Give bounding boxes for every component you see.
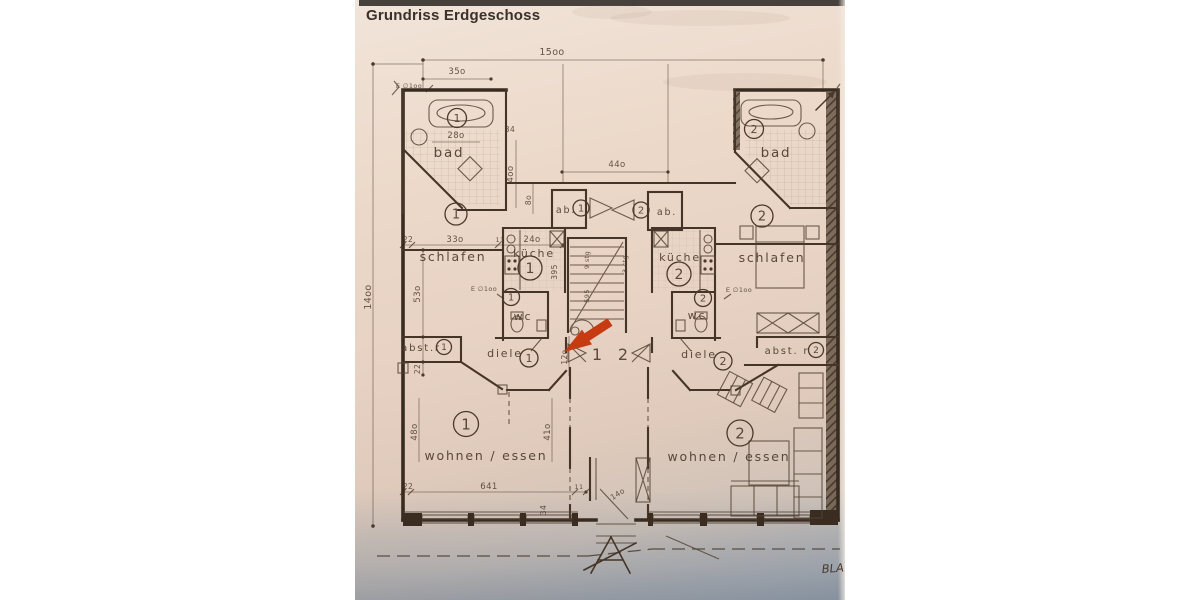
dining-chairs-2: [717, 362, 786, 422]
label-diele-1: diele: [487, 347, 523, 360]
unit-2-diele: 2: [720, 355, 727, 368]
label-ab-2: ab.: [657, 207, 677, 218]
dim-bad-height: 4oo: [506, 165, 516, 182]
corner-note: BLA: [821, 560, 844, 576]
wardrobe-2: [757, 313, 819, 333]
entrance-door-2: [632, 344, 650, 362]
unit-2-bad: 2: [751, 123, 758, 136]
dim-wohnen-height: 48o: [410, 423, 420, 440]
label-wc-2: wc: [688, 309, 707, 322]
unit-2-wc: 2: [700, 294, 706, 305]
paper-bleed-marks: [572, 5, 827, 91]
label-diele-2: diele: [681, 348, 717, 361]
unit-1-wc: 1: [508, 293, 514, 304]
unit-1-kueche: 1: [526, 261, 535, 277]
unit-1-wohnen: 1: [461, 415, 471, 433]
entry-porch: [596, 458, 650, 543]
unit-2-kueche: 2: [675, 267, 684, 283]
label-schlafen-2: schlafen: [739, 250, 806, 265]
screenshot-canvas: Grundriss Erdgeschoss: [0, 0, 1200, 600]
unit-2-abst: 2: [813, 346, 819, 356]
red-annotation-arrow: [564, 318, 613, 352]
dim-wohnen-width: 641: [480, 482, 497, 492]
floorplan-drawing: 15oo 35o 44o 14oo 4oo 8o 22 33o 11 24o 5…: [0, 0, 1200, 600]
label-abst-2: abst. r: [765, 346, 810, 357]
label-bad-1: bad: [434, 145, 465, 161]
dim-front: 35o: [448, 67, 465, 77]
label-kueche-1: küche: [513, 247, 555, 260]
label-abst-1: abst.r: [401, 343, 441, 354]
unit-1-ab: 1: [578, 204, 584, 215]
dim-33o: 33o: [446, 235, 463, 245]
vent-label-3: E ∅1oo: [726, 286, 752, 294]
dim-ab-height: 8o: [524, 195, 533, 205]
dim-center: 44o: [608, 160, 625, 170]
entrance-number-2: 2: [618, 345, 628, 364]
label-schlafen-1: schlafen: [420, 249, 487, 264]
unit-2-hall: 2: [758, 210, 766, 225]
unit-1-diele: 1: [526, 352, 533, 365]
unit-1-hall: 1: [452, 208, 460, 223]
stair-run-label: 9 stg: [583, 251, 591, 269]
dim-wohnen-height2: 41o: [543, 423, 553, 440]
dim-total-height: 14oo: [363, 284, 374, 309]
central-staircase: [570, 242, 624, 335]
vent-label-2: E ∅1oo: [471, 285, 497, 293]
dim-total-width: 15oo: [539, 47, 564, 58]
dim-porch: 14o: [609, 486, 627, 502]
shelf-2: [794, 428, 822, 518]
label-wohnen-2: wohnen / essen: [667, 449, 790, 464]
label-wohnen-1: wohnen / essen: [424, 448, 547, 463]
entrance-number-1: 1: [592, 345, 602, 364]
unit-1-bad: 1: [454, 112, 461, 125]
unit-2-wohnen: 2: [735, 424, 745, 442]
dim-window-34: 34: [539, 505, 548, 515]
dim-11b: 11: [574, 483, 583, 491]
sideboard-2: [799, 373, 823, 418]
unit-1-abst: 1: [441, 343, 447, 353]
label-bad-2: bad: [761, 145, 792, 161]
dim-22b: 22: [413, 364, 422, 374]
dim-schlafen-height: 53o: [413, 285, 423, 302]
bathtub-1: [429, 100, 493, 127]
label-wc-1: wc: [514, 310, 533, 323]
unit-2-ab: 2: [638, 206, 644, 217]
